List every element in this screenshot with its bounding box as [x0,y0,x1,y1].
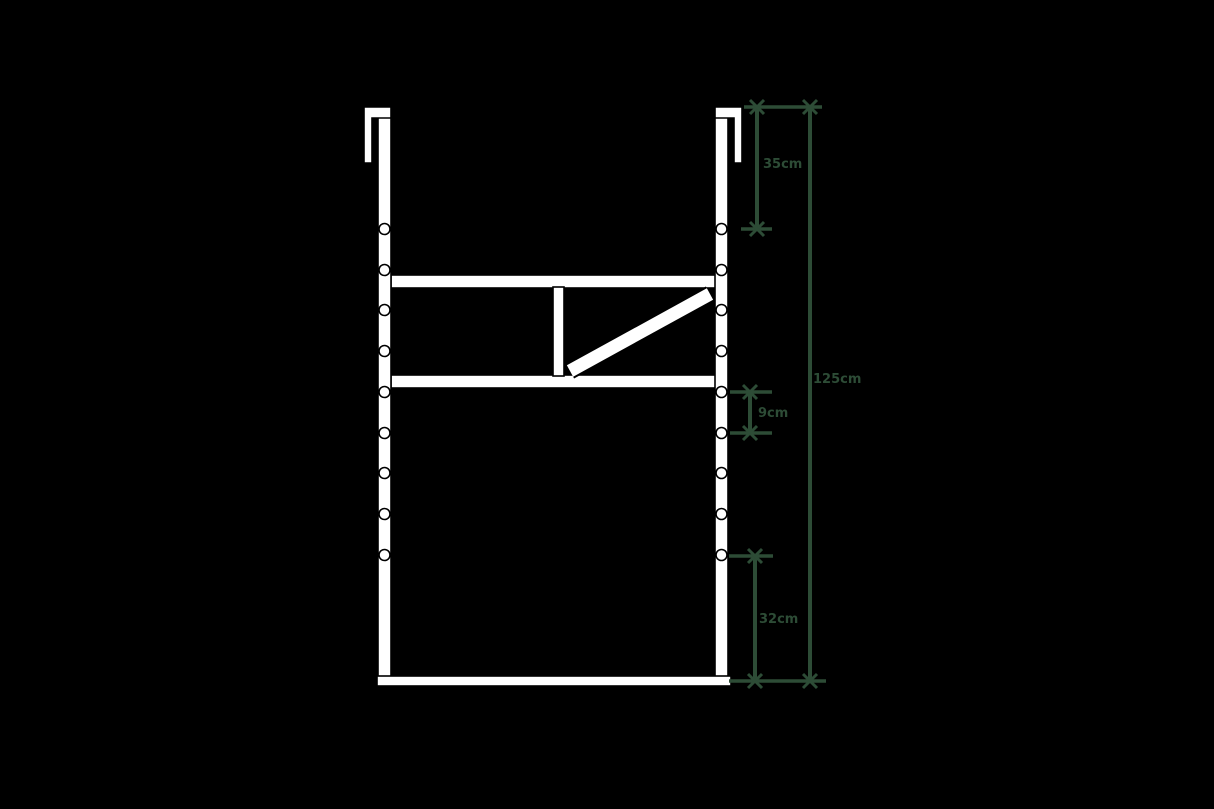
hole [716,509,727,520]
hole [716,387,727,398]
diagonal-brace [570,294,710,371]
bottom-rail [377,676,731,686]
left-post-holes [379,224,390,561]
dimension-label-total-height: 125cm [813,372,861,387]
hole [379,224,390,235]
hole [716,224,727,235]
hole [716,265,727,276]
hole [716,305,727,316]
top-rail [391,275,716,288]
dimension-annotations: 35cm 9cm 32cm 125cm [729,100,861,688]
hole [379,468,390,479]
hole [379,509,390,520]
hole [716,346,727,357]
dimension-label-top-segment: 35cm [763,157,802,172]
middle-rail [391,375,716,388]
hole [716,550,727,561]
hole [716,428,727,439]
frame-structure [364,107,742,686]
scaffold-frame-technical-drawing: 35cm 9cm 32cm 125cm [0,0,1214,809]
center-vertical-strut [553,287,564,376]
hole [379,387,390,398]
hole [379,550,390,561]
dimension-label-middle-segment: 9cm [758,406,788,421]
hole [379,305,390,316]
hole [379,346,390,357]
hole [379,265,390,276]
hole [716,468,727,479]
hole [379,428,390,439]
dimension-label-bottom-segment: 32cm [759,612,798,627]
right-post-holes [716,224,727,561]
